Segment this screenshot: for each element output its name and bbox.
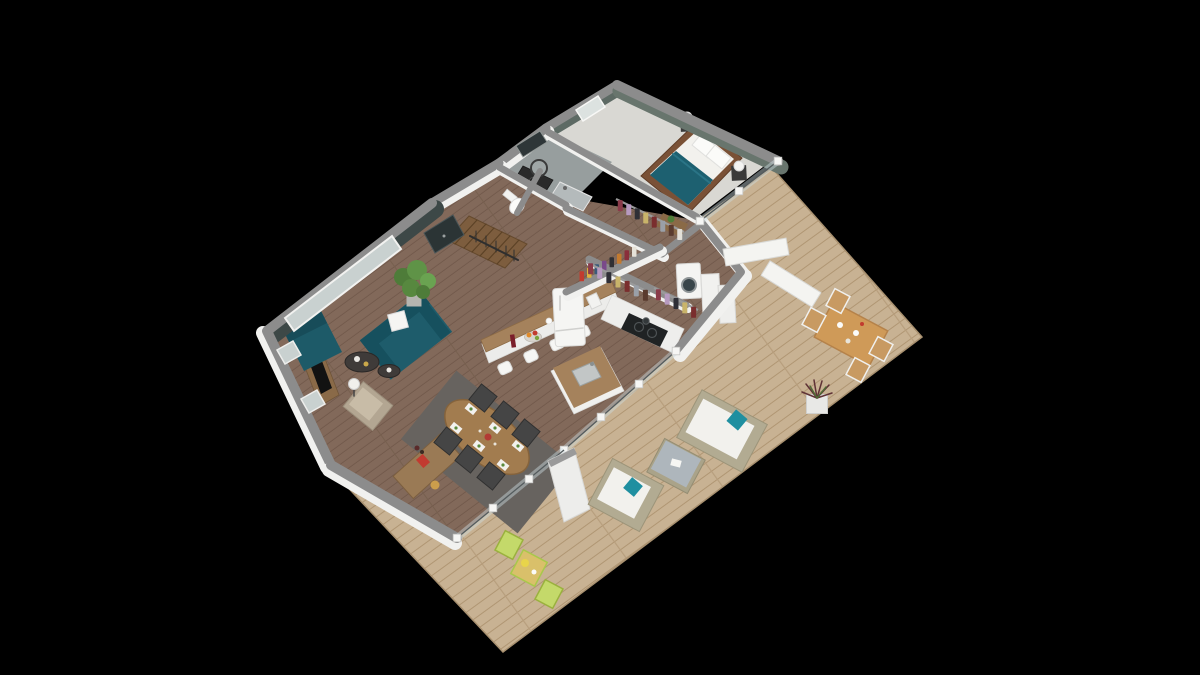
washer-door [682, 278, 696, 292]
sink-faucet [590, 362, 594, 366]
outdoor-plate-1 [837, 322, 843, 328]
outdoor-plate-2 [853, 330, 859, 336]
floor-lamp-shade [349, 379, 360, 390]
coffee-table-large [345, 352, 379, 372]
table-decor-bowl [364, 362, 369, 367]
table-decor-book [354, 356, 360, 362]
entry-door-handle [443, 235, 446, 238]
fruit-orange [527, 333, 532, 338]
candle-1 [479, 430, 482, 433]
bistro-cup [532, 570, 537, 575]
floorplan-stage [0, 0, 1200, 675]
outdoor-plate-3 [846, 339, 851, 344]
shower-head [563, 186, 567, 190]
bistro-flowers [521, 559, 529, 567]
napkin-6 [501, 463, 504, 466]
outdoor-jam [860, 322, 864, 326]
napkin-4 [454, 426, 457, 429]
candle-2 [494, 443, 497, 446]
sideboard-bottle-1 [415, 446, 420, 451]
napkin-1 [469, 407, 472, 410]
centerpiece-flowers [485, 434, 492, 441]
fruit-lime [535, 336, 539, 340]
desk-plant [668, 216, 675, 223]
sideboard-bottle-2 [420, 450, 424, 454]
napkin-2 [493, 426, 496, 429]
napkin-3 [516, 444, 519, 447]
fruit-apple [533, 331, 538, 336]
plant-leaf-5 [416, 285, 430, 299]
sideboard-vase [431, 481, 440, 490]
pan [643, 318, 649, 324]
napkin-5 [477, 444, 480, 447]
floorplan-3d-render [0, 0, 1200, 675]
table-decor-vase [387, 368, 392, 373]
sofa-pillow [388, 311, 409, 332]
teacup-1 [546, 318, 552, 324]
bedside-lamp-2 [734, 161, 744, 171]
